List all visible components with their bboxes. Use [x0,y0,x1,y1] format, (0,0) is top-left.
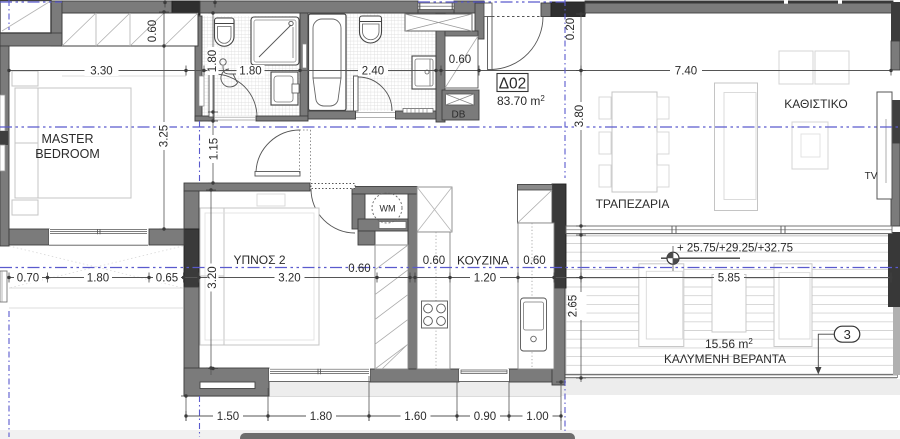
svg-text:1.20: 1.20 [474,273,496,285]
svg-text:1.80: 1.80 [239,66,261,78]
svg-text:83.70 m2: 83.70 m2 [497,94,545,108]
svg-text:1.50: 1.50 [217,411,239,423]
svg-text:7.40: 7.40 [675,66,697,78]
svg-text:TV: TV [865,171,878,182]
svg-text:ΚΟΥΖΙΝΑ: ΚΟΥΖΙΝΑ [457,254,509,268]
svg-text:Δ02: Δ02 [499,76,527,93]
svg-text:3.80: 3.80 [574,105,586,127]
svg-text:0.60: 0.60 [449,54,471,66]
svg-text:5.85: 5.85 [718,273,740,285]
svg-text:0.60: 0.60 [147,20,159,42]
svg-text:ΤΡΑΠΕΖΑΡΙΑ: ΤΡΑΠΕΖΑΡΙΑ [596,197,670,211]
svg-text:1.80: 1.80 [87,273,109,285]
svg-text:1.00: 1.00 [526,411,548,423]
svg-text:ΚΑΘΙΣΤΙΚΟ: ΚΑΘΙΣΤΙΚΟ [784,97,847,111]
svg-text:0.65: 0.65 [156,273,178,285]
svg-text:15.56 m2: 15.56 m2 [705,337,753,351]
svg-text:0.60: 0.60 [523,255,545,267]
svg-text:1.80: 1.80 [310,411,332,423]
svg-text:0.20: 0.20 [565,18,577,40]
svg-text:ΥΠΝΟΣ 2: ΥΠΝΟΣ 2 [233,253,285,267]
svg-text:1.15: 1.15 [209,138,221,160]
svg-text:0.60: 0.60 [348,263,370,275]
svg-text:2.65: 2.65 [568,295,580,317]
svg-text:+ 25.75/+29.25/+32.75: + 25.75/+29.25/+32.75 [677,243,793,255]
svg-text:3: 3 [844,327,851,342]
svg-text:0.90: 0.90 [474,411,496,423]
svg-text:1.80: 1.80 [207,50,219,72]
svg-text:MASTER: MASTER [41,132,93,146]
svg-text:DB: DB [452,110,466,121]
svg-text:3.30: 3.30 [90,66,112,78]
svg-text:BEDROOM: BEDROOM [35,147,100,161]
svg-text:2.40: 2.40 [362,66,384,78]
svg-text:3.25: 3.25 [159,125,171,147]
svg-text:3.20: 3.20 [278,273,300,285]
svg-text:3.20: 3.20 [207,266,219,288]
svg-text:ΚΑΛΥΜΕΝΗ ΒΕΡΑΝΤΑ: ΚΑΛΥΜΕΝΗ ΒΕΡΑΝΤΑ [664,352,786,366]
svg-text:WM: WM [380,204,396,214]
svg-text:0.70: 0.70 [17,273,39,285]
svg-text:0.60: 0.60 [423,255,445,267]
svg-text:1.60: 1.60 [404,411,426,423]
